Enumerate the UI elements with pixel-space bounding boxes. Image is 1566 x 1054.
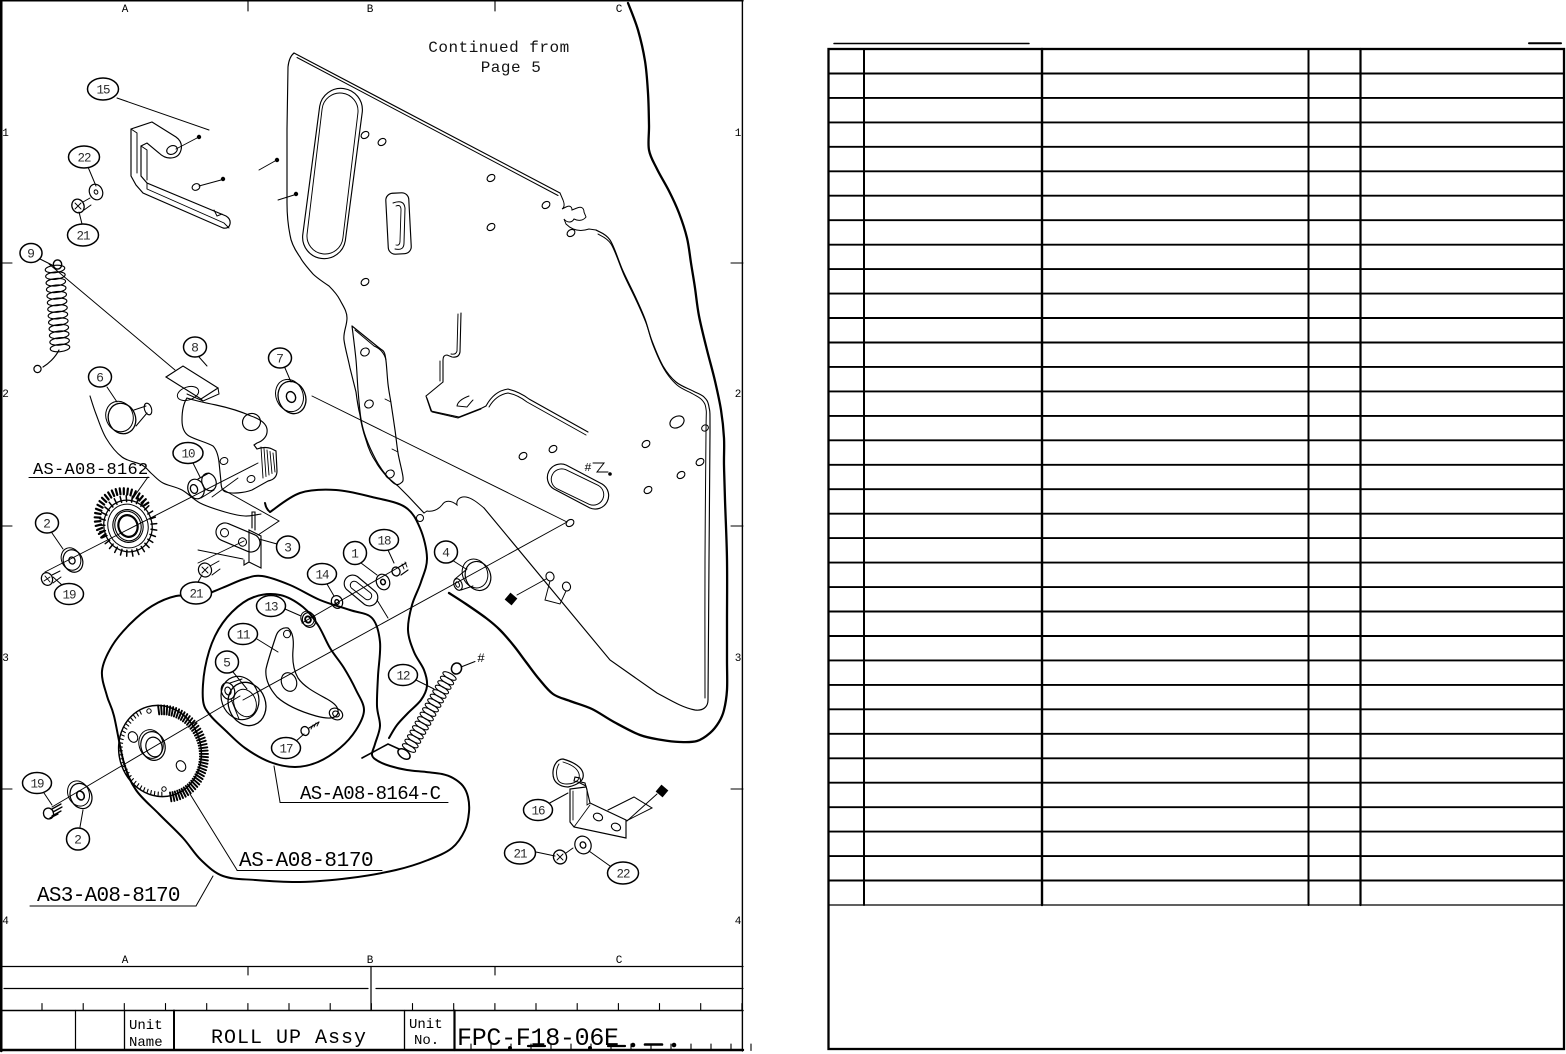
svg-text:2: 2 <box>43 516 51 531</box>
svg-text:FPC-F18-06E: FPC-F18-06E <box>457 1024 619 1053</box>
svg-text:2: 2 <box>74 832 82 847</box>
svg-text:B: B <box>367 955 374 967</box>
svg-text:Continued from: Continued from <box>428 39 569 57</box>
svg-text:AS-A08-8170: AS-A08-8170 <box>239 850 373 873</box>
svg-text:21: 21 <box>189 587 203 601</box>
svg-text:4: 4 <box>442 545 450 560</box>
svg-text:16: 16 <box>531 804 545 818</box>
svg-text:C: C <box>616 4 623 16</box>
svg-text:5: 5 <box>223 655 231 670</box>
svg-text:A: A <box>122 955 129 967</box>
svg-text:4: 4 <box>2 916 9 928</box>
svg-text:Name: Name <box>129 1035 163 1051</box>
svg-text:18: 18 <box>377 534 391 548</box>
svg-text:No.: No. <box>414 1033 439 1049</box>
svg-text:22: 22 <box>77 151 91 165</box>
svg-text:#: # <box>477 651 485 666</box>
svg-text:9: 9 <box>27 246 35 261</box>
svg-text:1: 1 <box>735 128 742 140</box>
svg-text:Unit: Unit <box>129 1018 163 1034</box>
svg-text:13: 13 <box>264 600 278 614</box>
svg-text:3: 3 <box>735 653 742 665</box>
svg-text:C: C <box>616 955 623 967</box>
svg-text:8: 8 <box>191 340 199 355</box>
svg-text:Page 5: Page 5 <box>481 59 542 77</box>
svg-text:11: 11 <box>236 628 250 642</box>
svg-text:1: 1 <box>2 128 9 140</box>
svg-text:A: A <box>122 4 129 16</box>
svg-text:AS-A08-8164-C: AS-A08-8164-C <box>300 783 441 805</box>
svg-text:3: 3 <box>2 653 9 665</box>
svg-text:21: 21 <box>76 229 90 243</box>
svg-text:7: 7 <box>276 351 284 366</box>
svg-text:21: 21 <box>513 847 527 861</box>
svg-text:15: 15 <box>96 83 110 97</box>
svg-text:6: 6 <box>96 370 104 385</box>
svg-text:22: 22 <box>616 867 630 881</box>
svg-text:#: # <box>584 461 591 475</box>
svg-text:12: 12 <box>396 669 410 683</box>
svg-text:19: 19 <box>30 777 44 791</box>
svg-text:2: 2 <box>735 389 742 401</box>
svg-text:17: 17 <box>279 742 293 756</box>
svg-text:1: 1 <box>351 546 359 561</box>
svg-text:4: 4 <box>735 916 742 928</box>
svg-text:B: B <box>367 4 374 16</box>
svg-text:Unit: Unit <box>409 1017 443 1033</box>
svg-text:10: 10 <box>181 447 195 461</box>
svg-text:3: 3 <box>284 540 292 555</box>
svg-text:ROLL UP Assy: ROLL UP Assy <box>211 1027 367 1050</box>
svg-text:2: 2 <box>2 389 9 401</box>
svg-text:19: 19 <box>62 588 76 602</box>
svg-text:14: 14 <box>315 568 329 582</box>
svg-text:AS3-A08-8170: AS3-A08-8170 <box>37 885 180 908</box>
